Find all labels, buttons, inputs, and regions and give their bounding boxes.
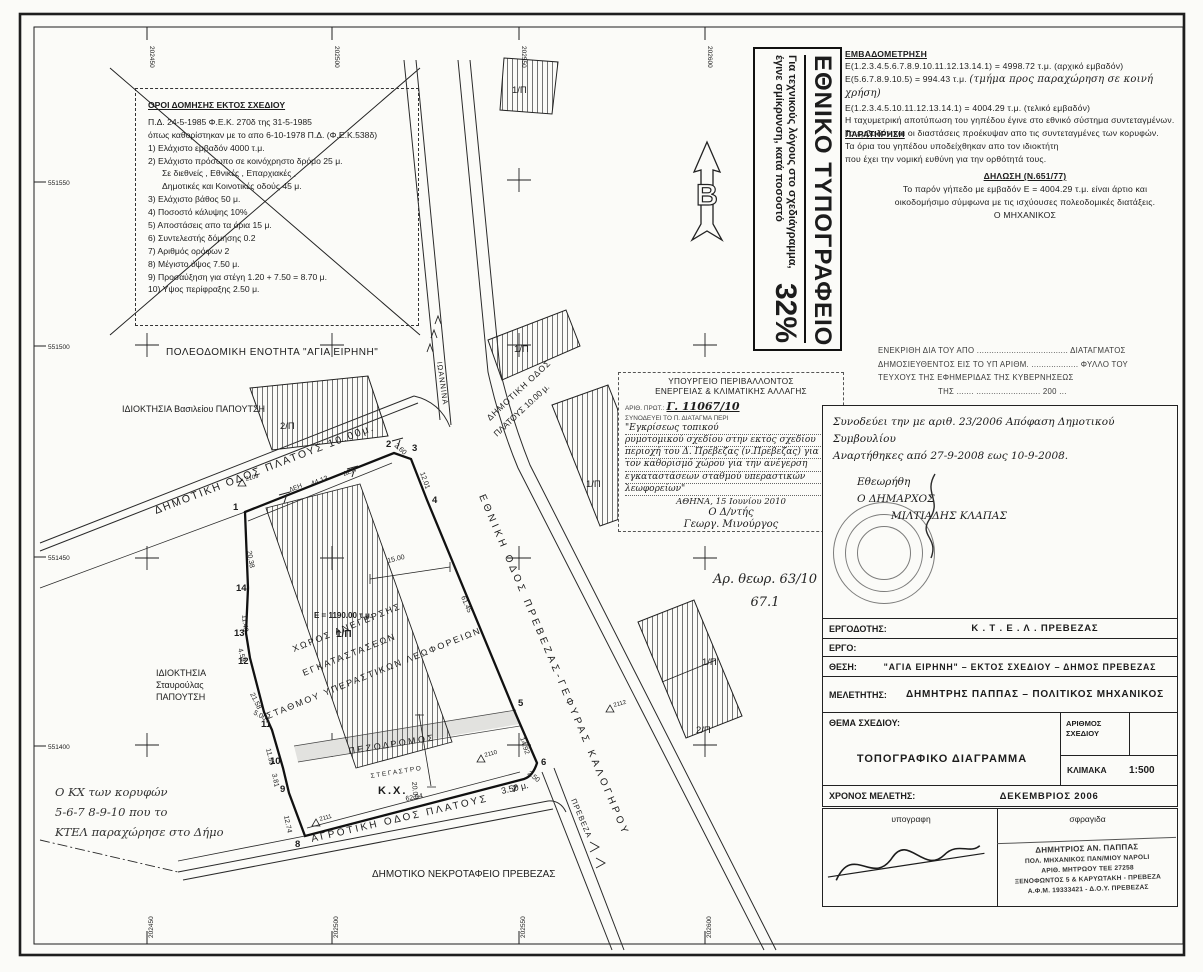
ministry-stamp: ΥΠΟΥΡΓΕΙΟ ΠΕΡΙΒΑΛΛΟΝΤΟΣ ΕΝΕΡΓΕΙΑΣ & ΚΛΙΜ… (618, 372, 844, 532)
gazette-line: ΕΝΕΚΡΙΘΗ ΔΙΑ ΤΟΥ ΑΠΟ ...................… (878, 344, 1168, 358)
engineer-stamp: ΔΗΜΗΤΡΙΟΣ ΑΝ. ΠΑΠΠΑΣΠΟΛ. ΜΗΧΑΝΙΚΟΣ ΠΑΝ/Μ… (997, 837, 1178, 898)
vertex-number: 9 (280, 784, 285, 795)
regulations-decree: Π.Δ. 24-5-1985 Φ.Ε.Κ. 270δ της 31-5-1985 (148, 116, 410, 129)
direction-label: ΙΩΑΝΝΙΝΑ (435, 361, 450, 406)
drawing-number-label: ΑΡΙΘΜΟΣ ΣΧΕΔΙΟΥ (1066, 719, 1124, 739)
road-label: ΑΓΡΟΤΙΚΗ ΟΔΟΣ ΠΛΑΤΟΥΣ (310, 793, 489, 845)
mayor-signature-icon (909, 472, 959, 562)
signature-caption: υπογραφη (823, 809, 999, 824)
regulation-item: 3) Ελάχιστο βάθος 50 μ. (148, 193, 410, 206)
vertex-number: 5 (518, 698, 524, 709)
declaration-block: ΔΗΛΩΣΗ (Ν.651/77) Το παρόν γήπεδο με εμβ… (880, 170, 1170, 222)
vertex-number: 4 (432, 495, 438, 506)
location-label: ΘΕΣΗ: (823, 660, 863, 674)
shelter-label: Σ Τ Ε Γ Α Σ Τ Ρ Ο (370, 765, 421, 780)
reduction-note: Για τεχνικούς λόγους στο σχεδιάγραμμα, έ… (772, 55, 797, 279)
regulation-item: 9) Προσαύξηση για στέγη 1.20 + 7.50 = 8.… (148, 271, 410, 284)
scale-value: 1:500 (1107, 765, 1177, 776)
designer-label: ΜΕΛΕΤΗΤΗΣ: (823, 688, 893, 702)
grid-coordinate: 202450 (148, 46, 155, 68)
printing-office-box: ΕΘΝΙΚΟ ΤΥΠΟΓΡΑΦΕΙΟ Για τεχνικούς λόγους … (753, 47, 842, 351)
study-date-row: ΧΡΟΝΟΣ ΜΕΛΕΤΗΣ: ΔΕΚΕΜΒΡΙΟΣ 2006 (822, 785, 1178, 807)
location-value: "ΑΓΙΑ ΕΙΡΗΝΗ" – ΕΚΤΟΣ ΣΧΕΔΙΟΥ – ΔΗΜΟΣ ΠΡ… (863, 662, 1177, 672)
regulation-item: Δημοτικές και Κοινοτικές οδούς 45 μ. (148, 180, 410, 193)
regulation-item: 5) Αποστάσεις απο τα όρια 15 μ. (148, 219, 410, 232)
regulation-item: 4) Ποσοστό κάλυψης 10% (148, 206, 410, 219)
grid-coordinate: 202550 (520, 916, 527, 938)
gazette-approval-block: ΕΝΕΚΡΙΘΗ ΔΙΑ ΤΟΥ ΑΠΟ ...................… (878, 344, 1168, 399)
dimension: 14.92 (518, 736, 530, 755)
kx-note-line: 5-6-7 8-9-10 που το (55, 802, 255, 822)
regulation-item: Σε διεθνείς , Εθνικές , Επαρχιακές , (148, 167, 410, 180)
utility-pole-label: ΔΕΗ (342, 466, 357, 477)
designer-value: ΔΗΜΗΤΡΗΣ ΠΑΠΠΑΣ – ΠΟΛΙΤΙΚΟΣ ΜΗΧΑΝΙΚΟΣ (893, 689, 1177, 700)
decree-subject: "Εγκρίσεως τοπικούρυμοτομικού σχεδίου στ… (625, 423, 837, 497)
grid-coordinate: 202600 (706, 46, 713, 68)
council-approved: Εθεωρήθη (857, 474, 1167, 491)
council-note-line: Συνοδεύει την με αριθ. 23/2006 Απόφαση Δ… (833, 414, 1167, 448)
subject-row: ΘΕΜΑ ΣΧΕΔΙΟΥ: ΤΟΠΟΓΡΑΦΙΚΟ ΔΙΑΓΡΑΜΜΑ ΑΡΙΘ… (822, 712, 1178, 786)
vertex-number: 8 (295, 839, 300, 850)
client-row: ΕΡΓΟΔΟΤΗΣ: Κ . Τ . Ε . Λ . ΠΡΕΒΕΖΑΣ (822, 618, 1178, 639)
kx-note-line: ΚΤΕΛ παραχώρησε στο Δήμο (55, 822, 255, 842)
regulations-decree: όπως καθορίστηκαν με το απο 6-10-1978 Π.… (148, 129, 410, 142)
observation-title: ΠΑΡΑΤΗΡΗΣΗ (845, 128, 1145, 140)
area-measurement-block: ΕΜΒΑΔΟΜΕΤΡΗΣΗ Ε(1.2.3.4.5.6.7.8.9.10.11.… (845, 48, 1185, 139)
grid-coordinate: 551450 (48, 555, 70, 562)
grid-coordinate: 202550 (520, 46, 527, 68)
block-label: 2/Π (696, 725, 711, 736)
study-date-value: ΔΕΚΕΜΒΡΙΟΣ 2006 (921, 791, 1177, 802)
project-row: ΕΡΓΟ: (822, 638, 1178, 657)
dimension: 15.00 (387, 554, 406, 565)
decree-subject-line: λεωφορείων" (625, 484, 837, 496)
stamp-date: ΑΘΗΝΑ, 15 Ιουνίου 2010 (625, 497, 837, 507)
client-label: ΕΡΓΟΔΟΤΗΣ: (823, 622, 893, 636)
regulations-items: 1) Ελάχιστο εμβαδόν 4000 τ.μ.2) Ελάχιστο… (148, 142, 410, 297)
cemetery-label: ΔΗΜΟΤΙΚΟ ΝΕΚΡΟΤΑΦΕΙΟ ΠΡΕΒΕΖΑΣ (372, 869, 555, 880)
vertex-number: 3 (412, 443, 417, 454)
project-label: ΕΡΓΟ: (823, 641, 862, 655)
kx-handwritten-note: Ο ΚΧ των κορυφών 5-6-7 8-9-10 που το ΚΤΕ… (55, 782, 255, 842)
area-line: Ε(5.6.7.8.9.10.5) = 994.43 τ.μ. (845, 74, 967, 84)
decree-subject-line: ρυμοτομικού σχεδίου στην εκτός σχεδίου (625, 435, 837, 447)
file-number-line: 67.1 (700, 591, 830, 614)
block-label: 1/Π (702, 657, 717, 668)
grid-coordinate: 551550 (48, 180, 70, 187)
topographic-drawing-sheet: 2024502025002025502026005515505515005514… (0, 0, 1203, 972)
observation-line: που έχει την νομική ευθύνη για την ορθότ… (845, 153, 1145, 165)
planning-unit-label: ΠΟΛΕΟΔΟΜΙΚΗ ΕΝΟΤΗΤΑ "ΑΓΙΑ ΕΙΡΗΝΗ" (166, 347, 378, 358)
observation-line: Τα όρια του γηπέδου υποδείχθηκαν απο τον… (845, 140, 1145, 152)
protocol-label: ΑΡΙΘ. ΠΡΩΤ.: (625, 405, 664, 412)
designer-row: ΜΕΛΕΤΗΤΗΣ: ΔΗΜΗΤΡΗΣ ΠΑΠΠΑΣ – ΠΟΛΙΤΙΚΟΣ Μ… (822, 676, 1178, 713)
ministry-name: ΥΠΟΥΡΓΕΙΟ ΠΕΡΙΒΑΛΛΟΝΤΟΣ (625, 377, 837, 387)
decree-subject-line: "Εγκρίσεως τοπικού (625, 423, 837, 435)
grid-coordinate: 551400 (48, 744, 70, 751)
scale-label: ΚΛΙΜΑΚΑ (1061, 765, 1107, 775)
regulation-item: 8) Μέγιστο ύψος 7.50 μ. (148, 258, 410, 271)
regulation-item: 1) Ελάχιστο εμβαδόν 4000 τ.μ. (148, 142, 410, 155)
vertex-number: 6 (541, 757, 546, 768)
gazette-line: ΤΕΥΧΟΥΣ ΤΗΣ ΕΦΗΜΕΡΙΔΑΣ ΤΗΣ ΚΥΒΕΡΝΗΣΕΩΣ (878, 371, 1168, 385)
vertex-number: 2 (386, 439, 391, 450)
block-label: 2/Π (280, 421, 295, 432)
area-line: Ε(1.2.3.4.5.6.7.8.9.10.11.12.13.14.1) = … (845, 60, 1185, 72)
dimension: 12.74 (282, 815, 293, 834)
accompanies-label: ΣΥΝΟΔΕΥΕΙ ΤΟ Π. ΔΙΑΤΑΓΜΑ ΠΕΡΙ (625, 415, 728, 422)
kx-note-line: Ο ΚΧ των κορυφών (55, 782, 255, 802)
survey-point: 2112 (613, 700, 628, 709)
ministry-name: ΕΝΕΡΓΕΙΑΣ & ΚΛΙΜΑΤΙΚΗΣ ΑΛΛΑΓΗΣ (625, 387, 837, 397)
director-title: Ο Δ/ντής (625, 507, 837, 519)
declaration-line: οικοδομήσιμο σύμφωνα με τις ισχύουσες πο… (880, 196, 1170, 209)
client-value: Κ . Τ . Ε . Λ . ΠΡΕΒΕΖΑΣ (893, 623, 1177, 634)
protocol-number: Γ. 11067/10 (666, 400, 739, 413)
ownership-label: ΠΑΠΟΥΤΣΗ (156, 692, 205, 702)
survey-point: 2110 (484, 750, 499, 759)
grid-coordinate: 551500 (48, 344, 70, 351)
block-label: 1/Π (514, 344, 529, 355)
decree-subject-line: εγκαταστάσεων σταθμού υπεραστικών (625, 472, 837, 484)
stamp-caption: σφραγιδα (998, 809, 1177, 824)
subject-label: ΘΕΜΑ ΣΧΕΔΙΟΥ: (829, 718, 900, 728)
council-note-line: Αναρτήθηκες από 27-9-2008 εως 10-9-2008. (833, 448, 1167, 465)
council-note-cell: Συνοδεύει την με αριθ. 23/2006 Απόφαση Δ… (822, 405, 1178, 619)
regulations-box: ΟΡΟΙ ΔΟΜΗΣΗΣ ΕΚΤΟΣ ΣΧΕΔΙΟΥ Π.Δ. 24-5-198… (135, 88, 419, 326)
regulation-item: 6) Συντελεστής δόμησης 0.2 (148, 232, 410, 245)
regulation-item: 10) Υψος περίφραξης 2.50 μ. (148, 283, 410, 296)
vertex-number: 14 (236, 583, 247, 594)
signature-row: υπογραφη σφραγιδα ΔΗΜΗΤΡΙΟΣ ΑΝ. ΠΑΠΠΑΣΠΟ… (822, 808, 1178, 907)
grid-coordinate: 202450 (148, 916, 155, 938)
dimension: 11.55 (264, 748, 275, 766)
regulation-item: 7) Αριθμός ορόφων 2 (148, 245, 410, 258)
gazette-line: ΔΗΜΟΣΙΕΥΘΕΝΤΟΣ ΕΙΣ ΤΟ ΥΠ ΑΡΙΘΜ. ........… (878, 358, 1168, 372)
location-row: ΘΕΣΗ: "ΑΓΙΑ ΕΙΡΗΝΗ" – ΕΚΤΟΣ ΣΧΕΔΙΟΥ – ΔΗ… (822, 656, 1178, 677)
file-number-line: Αρ. θεωρ. 63/10 (700, 568, 830, 591)
area-line: Η ταχυμετρική αποτύπωση του γηπέδου έγιν… (845, 114, 1185, 126)
reduction-percent: 32% (768, 283, 802, 343)
vertex-number: 7 (512, 784, 517, 795)
common-space-label: Κ.Χ. (378, 785, 407, 797)
ownership-label: Σταυρούλας (156, 680, 204, 690)
decree-subject-line: περιοχή του Δ. Πρέβεζας (ν.Πρέβεζας) για (625, 447, 837, 459)
declaration-signer: Ο ΜΗΧΑΝΙΚΟΣ (880, 209, 1170, 222)
engineer-signature-icon (823, 828, 993, 898)
regulation-item: 2) Ελάχιστο πρόσωπο σε κοινόχρηστο δρόμο… (148, 155, 410, 168)
block-label: 1/Π (512, 85, 527, 96)
declaration-line: Το παρόν γήπεδο με εμβαδόν Ε = 4004.29 τ… (880, 183, 1170, 196)
subject-value: ΤΟΠΟΓΡΑΦΙΚΟ ΔΙΑΓΡΑΜΜΑ (823, 753, 1061, 765)
declaration-title: ΔΗΛΩΣΗ (Ν.651/77) (880, 170, 1170, 183)
printing-office-title: ΕΘΝΙΚΟ ΤΥΠΟΓΡΑΦΕΙΟ (804, 55, 836, 343)
observation-block: ΠΑΡΑΤΗΡΗΣΗ Τα όρια του γηπέδου υποδείχθη… (845, 128, 1145, 165)
grid-coordinate: 202600 (706, 916, 713, 938)
director-signature: Γεωργ. Μινούργος (625, 519, 837, 531)
grid-coordinate: 202500 (333, 916, 340, 938)
vertex-number: 1 (233, 502, 239, 513)
title-block-panel: Συνοδεύει την με αριθ. 23/2006 Απόφαση Δ… (822, 405, 1180, 907)
area-measurement-title: ΕΜΒΑΔΟΜΕΤΡΗΣΗ (845, 48, 1185, 60)
regulations-title: ΟΡΟΙ ΔΟΜΗΣΗΣ ΕΚΤΟΣ ΣΧΕΔΙΟΥ (148, 99, 410, 112)
dimension: 2.50 (526, 770, 541, 784)
file-number-note: Αρ. θεωρ. 63/10 67.1 (700, 568, 830, 615)
block-label: 1/Π (336, 629, 352, 640)
north-arrow-letter: Β (696, 179, 718, 212)
block-label: 1/Π (586, 479, 601, 490)
decree-subject-line: τον καθορισμό χώρου για την ανέγερση (625, 459, 837, 471)
round-stamp-icon (857, 526, 911, 580)
ownership-label: ΙΔΙΟΚΤΗΣΙΑ (156, 668, 206, 678)
dimension: 61.45 (459, 595, 472, 614)
area-line: Ε(1.2.3.4.5.10.11.12.13.14.1) = 4004.29 … (845, 102, 1185, 114)
dimension: 3.81 (270, 773, 280, 788)
ownership-label: ΙΔΙΟΚΤΗΣΙΑ Βασιλείου ΠΑΠΟΥΤΣΗ (122, 404, 265, 414)
dimension: 44.13 (310, 475, 329, 488)
area-value: Ε = 1190.00 τ.μ. (314, 611, 372, 620)
study-date-label: ΧΡΟΝΟΣ ΜΕΛΕΤΗΣ: (823, 789, 921, 803)
gazette-line: ΤΗΣ ....... .......................... 2… (878, 385, 1168, 399)
grid-coordinate: 202500 (333, 46, 340, 68)
